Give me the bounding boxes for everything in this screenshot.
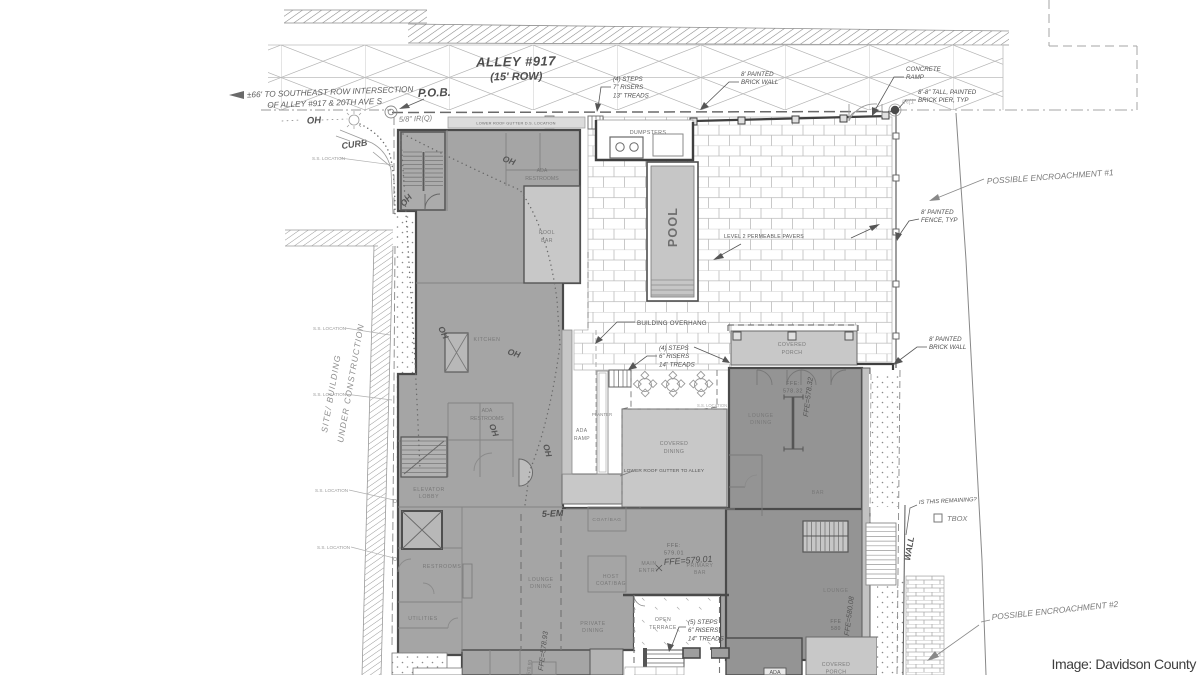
svg-text:OPEN: OPEN [655, 617, 671, 623]
svg-text:DINING: DINING [582, 628, 604, 634]
svg-text:(4) STEPS: (4) STEPS [613, 76, 643, 83]
svg-text:COAT/BAG: COAT/BAG [592, 517, 621, 523]
svg-text:ALLEY #917: ALLEY #917 [475, 53, 556, 69]
svg-text:8’ PAINTED: 8’ PAINTED [741, 71, 774, 78]
svg-text:FFE: FFE [830, 619, 841, 625]
svg-text:LEVEL 2 PERMEABLE PAVERS: LEVEL 2 PERMEABLE PAVERS [724, 234, 804, 240]
svg-text:HOST: HOST [603, 574, 619, 580]
svg-text:COVERED: COVERED [778, 342, 806, 348]
svg-text:5/8” IR(Q): 5/8” IR(Q) [399, 113, 433, 124]
svg-text:KITCHEN: KITCHEN [474, 337, 501, 343]
svg-text:MAIN: MAIN [641, 561, 656, 567]
svg-text:ADA: ADA [576, 428, 588, 434]
svg-text:BRICK PIER, TYP: BRICK PIER, TYP [918, 97, 969, 104]
svg-text:PORCH: PORCH [826, 670, 847, 675]
svg-text:BRICK WALL: BRICK WALL [929, 344, 967, 351]
svg-text:(15' ROW): (15' ROW) [490, 71, 543, 84]
svg-text:BUILDING OVERHANG: BUILDING OVERHANG [637, 320, 707, 327]
svg-text:S.S. LOCATION: S.S. LOCATION [312, 156, 345, 161]
svg-text:ELEVATOR: ELEVATOR [413, 487, 445, 493]
svg-text:LOUNGE: LOUNGE [748, 413, 774, 419]
svg-text:OH: OH [307, 115, 323, 127]
svg-text:FENCE, TYP: FENCE, TYP [921, 217, 958, 224]
svg-text:S.S. LOCATION: S.S. LOCATION [317, 545, 350, 550]
svg-text:S.S. LOCATION: S.S. LOCATION [315, 488, 348, 493]
svg-text:BAR: BAR [541, 238, 553, 244]
svg-text:14” TREADS: 14” TREADS [688, 635, 725, 642]
svg-text:BAR: BAR [694, 570, 706, 576]
svg-text:RAMP: RAMP [906, 74, 925, 81]
svg-text:LOUNGE: LOUNGE [823, 588, 849, 594]
svg-text:TBOX: TBOX [947, 514, 968, 523]
svg-text:6” RISERS: 6” RISERS [688, 627, 719, 634]
svg-text:BRICK WALL: BRICK WALL [741, 79, 779, 86]
svg-text:14” TREADS: 14” TREADS [659, 361, 696, 368]
svg-text:FFE:: FFE: [786, 381, 800, 387]
svg-text:580: 580 [831, 626, 841, 632]
svg-text:PRIVATE: PRIVATE [580, 621, 606, 627]
svg-text:IR(1: IR(1 [902, 98, 915, 106]
svg-text:ADA: ADA [482, 408, 493, 414]
svg-text:P.O.B.: P.O.B. [418, 87, 451, 100]
svg-text:LOUNGE: LOUNGE [528, 577, 554, 583]
svg-text:COAT/BAG: COAT/BAG [596, 581, 626, 587]
svg-text:RESTROOMS: RESTROOMS [525, 176, 559, 182]
svg-text:BAR: BAR [812, 490, 824, 496]
svg-text:8’ PAINTED: 8’ PAINTED [921, 209, 954, 216]
svg-text:DINING: DINING [750, 420, 772, 426]
svg-text:S.S. LOCATION: S.S. LOCATION [697, 403, 727, 408]
svg-text:6” RISERS: 6” RISERS [659, 353, 690, 360]
svg-text:ADA: ADA [537, 168, 548, 174]
svg-text:TERRACE: TERRACE [649, 625, 677, 631]
svg-text:RESTROOMS: RESTROOMS [423, 564, 462, 570]
svg-text:DINING: DINING [664, 449, 685, 455]
svg-text:PORCH: PORCH [782, 350, 803, 356]
svg-text:CONCRETE: CONCRETE [906, 66, 942, 73]
svg-text:COVERED: COVERED [822, 662, 850, 668]
svg-text:5-EM: 5-EM [542, 508, 564, 519]
svg-text:LOWER ROOF GUTTER TO ALLEY: LOWER ROOF GUTTER TO ALLEY [624, 468, 705, 474]
svg-text:LOWER ROOF GUTTER D.S. LOCATIO: LOWER ROOF GUTTER D.S. LOCATION [476, 121, 555, 126]
svg-text:RAMP: RAMP [574, 436, 590, 442]
svg-text:(5) STEPS: (5) STEPS [688, 619, 718, 626]
svg-text:8’-8” TALL, PAINTED: 8’-8” TALL, PAINTED [918, 89, 977, 96]
svg-text:LOBBY: LOBBY [419, 494, 439, 500]
svg-text:578.32: 578.32 [783, 388, 803, 394]
svg-text:S.S. LOCATION: S.S. LOCATION [313, 326, 346, 331]
svg-text:ADA: ADA [769, 670, 780, 675]
svg-text:UTILITIES: UTILITIES [408, 616, 438, 622]
svg-text:COVERED: COVERED [660, 441, 688, 447]
svg-text:8’ PAINTED: 8’ PAINTED [929, 336, 962, 343]
svg-text:RESTROOMS: RESTROOMS [470, 416, 504, 422]
svg-text:DINING: DINING [530, 584, 552, 590]
svg-text:PLANTER: PLANTER [592, 412, 612, 417]
svg-text:S.S. LOCATION: S.S. LOCATION [313, 392, 346, 397]
svg-text:7” RISERS: 7” RISERS [613, 84, 644, 91]
svg-text:FFE:: FFE: [667, 543, 681, 549]
svg-text:Image: Davidson County: Image: Davidson County [1051, 656, 1196, 672]
svg-text:(4) STEPS: (4) STEPS [659, 345, 689, 352]
svg-text:POOL: POOL [666, 207, 680, 247]
svg-text:13” TREADS: 13” TREADS [613, 92, 650, 99]
